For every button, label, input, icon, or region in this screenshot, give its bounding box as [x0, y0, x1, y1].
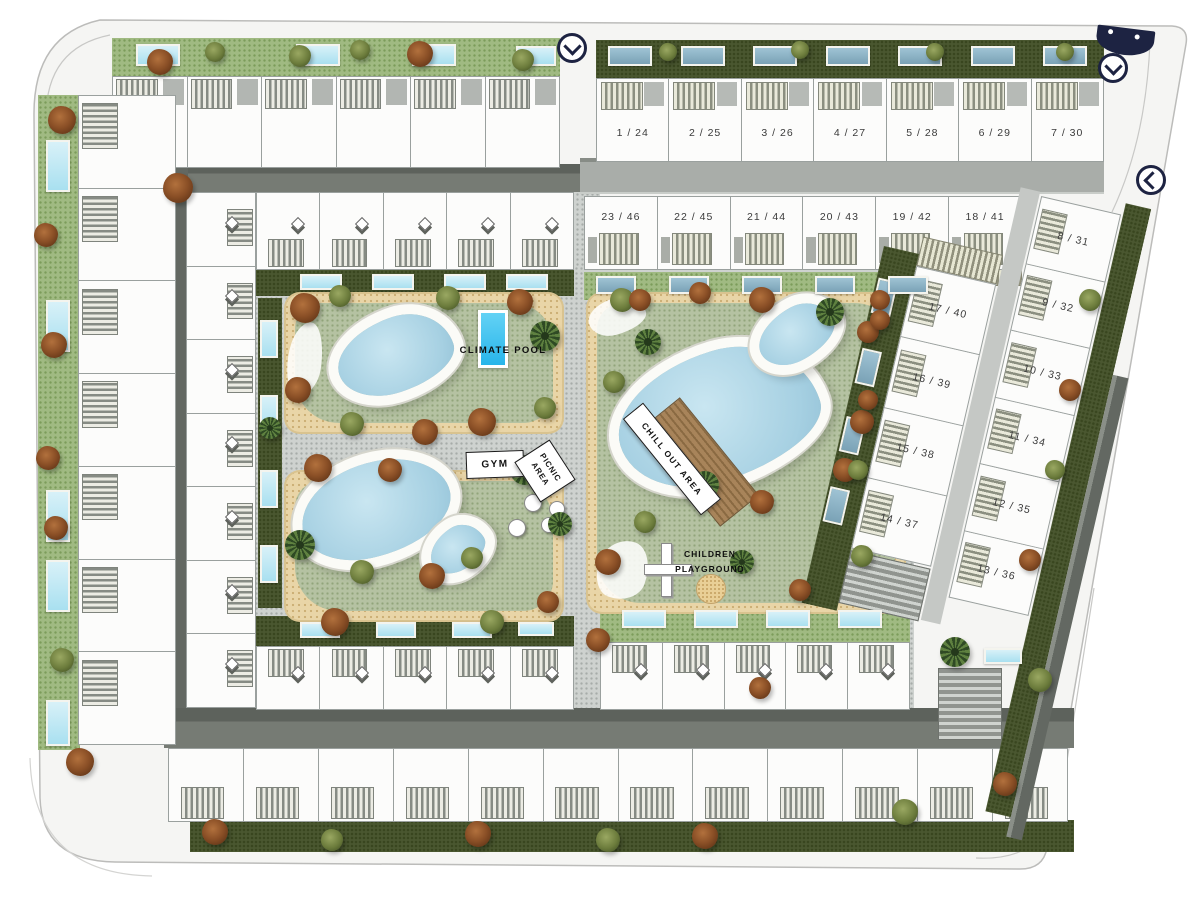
private-pool: [372, 274, 414, 290]
unit-cell: [168, 748, 244, 822]
private-pool: [444, 274, 486, 290]
unit-cell: [337, 76, 412, 168]
unit-cell: [786, 642, 848, 710]
climate-pool: [478, 310, 508, 368]
unit-cell: 4 / 27: [814, 78, 886, 162]
unit-cell: [693, 748, 768, 822]
private-pool: [694, 610, 738, 628]
picnic-table: [541, 517, 557, 533]
unit-cell: [663, 642, 725, 710]
unit-cell: [411, 76, 486, 168]
unit-cell: 6 / 29: [959, 78, 1031, 162]
unit-cell: 2 / 25: [669, 78, 741, 162]
private-pool: [136, 44, 180, 66]
private-pool: [412, 44, 456, 66]
unit-cell: [394, 748, 469, 822]
picnic-table: [549, 501, 565, 517]
private-pool: [296, 44, 340, 66]
unit-cell: [768, 748, 843, 822]
unit-cell: [78, 95, 176, 189]
unit-cell: [186, 414, 256, 488]
private-pool: [518, 622, 554, 636]
unit-label: 6 / 29: [959, 79, 1030, 161]
unit-cell: 3 / 26: [742, 78, 814, 162]
unit-cell: [256, 192, 320, 270]
housing-block-b3l: [186, 192, 256, 708]
unit-cell: [384, 192, 447, 270]
unit-label: 2 / 25: [669, 79, 740, 161]
unit-cell: 1 / 24: [596, 78, 669, 162]
private-pool: [260, 320, 278, 358]
housing-block-b5l: [256, 646, 574, 710]
private-pool: [669, 276, 709, 294]
unit-cell: 22 / 45: [658, 196, 731, 270]
private-pool: [971, 46, 1015, 66]
housing-block-nrow: 1 / 242 / 253 / 264 / 275 / 286 / 297 / …: [596, 78, 1104, 162]
private-pool: [898, 46, 942, 66]
private-pool: [46, 140, 70, 192]
private-pool: [260, 395, 278, 433]
unit-cell: [447, 646, 510, 710]
private-pool: [452, 622, 492, 638]
private-pool: [888, 276, 928, 294]
housing-block-b1: [112, 76, 560, 168]
private-pool: [46, 490, 70, 542]
housing-block-b5r: [600, 642, 910, 710]
private-pool: [766, 610, 810, 628]
unit-cell: [186, 561, 256, 635]
private-pool: [300, 622, 340, 638]
unit-label: 22 / 45: [658, 197, 730, 269]
unit-cell: [78, 189, 176, 282]
unit-label: 7 / 30: [1032, 79, 1103, 161]
private-pool: [622, 610, 666, 628]
hedge-strip-south: [190, 820, 1074, 852]
unit-cell: 7 / 30: [1032, 78, 1104, 162]
private-pool: [46, 300, 70, 352]
playground-sand-circle: [696, 574, 726, 604]
unit-cell: [447, 192, 510, 270]
unit-cell: [78, 652, 176, 745]
private-pool: [506, 274, 548, 290]
unit-label: 3 / 26: [742, 79, 813, 161]
unit-cell: [186, 634, 256, 708]
private-pool: [46, 700, 70, 746]
private-pool: [742, 276, 782, 294]
private-pool: [300, 274, 342, 290]
unit-cell: [848, 642, 910, 710]
unit-cell: [469, 748, 544, 822]
private-pool: [260, 470, 278, 508]
unit-label: 21 / 44: [731, 197, 803, 269]
private-pool: [46, 560, 70, 612]
unit-cell: [486, 76, 561, 168]
unit-cell: [843, 748, 918, 822]
private-pool: [815, 276, 855, 294]
housing-block-b2: [78, 95, 176, 745]
private-pool: [838, 610, 882, 628]
private-pool: [753, 46, 797, 66]
unit-cell: [384, 646, 447, 710]
unit-cell: [78, 374, 176, 467]
private-pool: [596, 276, 636, 294]
garage-block: [938, 668, 1002, 740]
private-pool: [516, 46, 556, 66]
unit-cell: [511, 646, 574, 710]
climate-pool-label: CLIMATE POOL: [446, 345, 560, 356]
unit-cell: [918, 748, 993, 822]
unit-cell: [78, 281, 176, 374]
unit-cell: 20 / 43: [803, 196, 876, 270]
unit-cell: [319, 748, 394, 822]
unit-cell: 5 / 28: [887, 78, 959, 162]
unit-cell: [188, 76, 263, 168]
site-plan: 1 / 242 / 253 / 264 / 275 / 286 / 297 / …: [0, 0, 1200, 898]
private-pool: [376, 622, 416, 638]
unit-label: 23 / 46: [585, 197, 657, 269]
unit-label: 4 / 27: [814, 79, 885, 161]
unit-cell: [186, 192, 256, 267]
entry-arrow-left: [1136, 165, 1166, 195]
private-pool: [681, 46, 725, 66]
private-pool: [260, 545, 278, 583]
private-pool: [1043, 46, 1087, 66]
unit-cell: [78, 560, 176, 653]
unit-cell: [186, 487, 256, 561]
children-playground-label: CHILDREN PLAYGROUND: [674, 547, 746, 577]
unit-cell: [320, 646, 383, 710]
entry-arrow-down: [1098, 53, 1128, 83]
unit-cell: [186, 267, 256, 341]
unit-cell: [78, 467, 176, 560]
entry-arrow-down: [557, 33, 587, 63]
unit-cell: [262, 76, 337, 168]
picnic-table: [508, 519, 526, 537]
unit-cell: [256, 646, 320, 710]
unit-cell: [544, 748, 619, 822]
private-pool: [608, 46, 652, 66]
unit-cell: [600, 642, 663, 710]
unit-cell: [320, 192, 383, 270]
unit-cell: 23 / 46: [584, 196, 658, 270]
unit-label: 1 / 24: [597, 79, 668, 161]
unit-cell: [511, 192, 574, 270]
housing-block-b3: [256, 192, 574, 270]
unit-cell: [725, 642, 787, 710]
unit-cell: [186, 340, 256, 414]
housing-block-bout: [168, 748, 1068, 822]
private-pool: [826, 46, 870, 66]
private-pool: [984, 648, 1022, 664]
unit-cell: [244, 748, 319, 822]
unit-label: 5 / 28: [887, 79, 958, 161]
unit-cell: 21 / 44: [731, 196, 804, 270]
unit-label: 20 / 43: [803, 197, 875, 269]
unit-cell: [619, 748, 694, 822]
garden-strip-west: [38, 95, 80, 750]
